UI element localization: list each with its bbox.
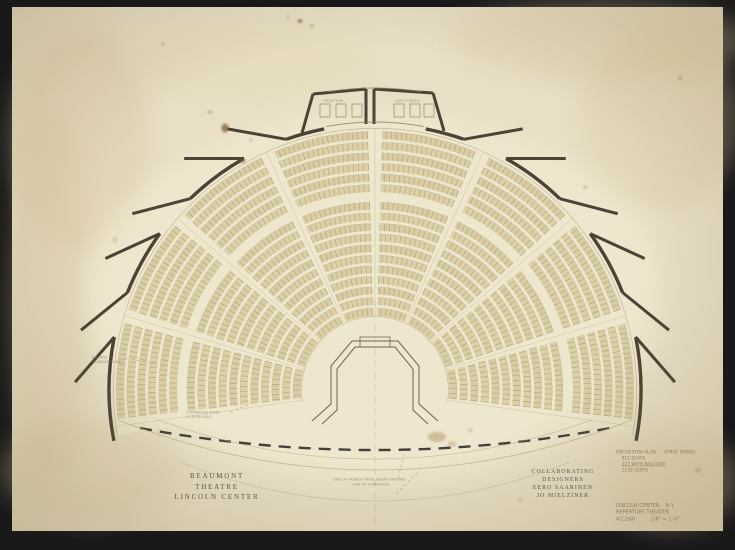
plan-canvas: [0, 0, 735, 550]
photo-of-drawing: BEAUMONT THEATRE LINCOLN CENTER COLLABOR…: [0, 0, 735, 550]
vignette-overlay: [12, 7, 723, 531]
